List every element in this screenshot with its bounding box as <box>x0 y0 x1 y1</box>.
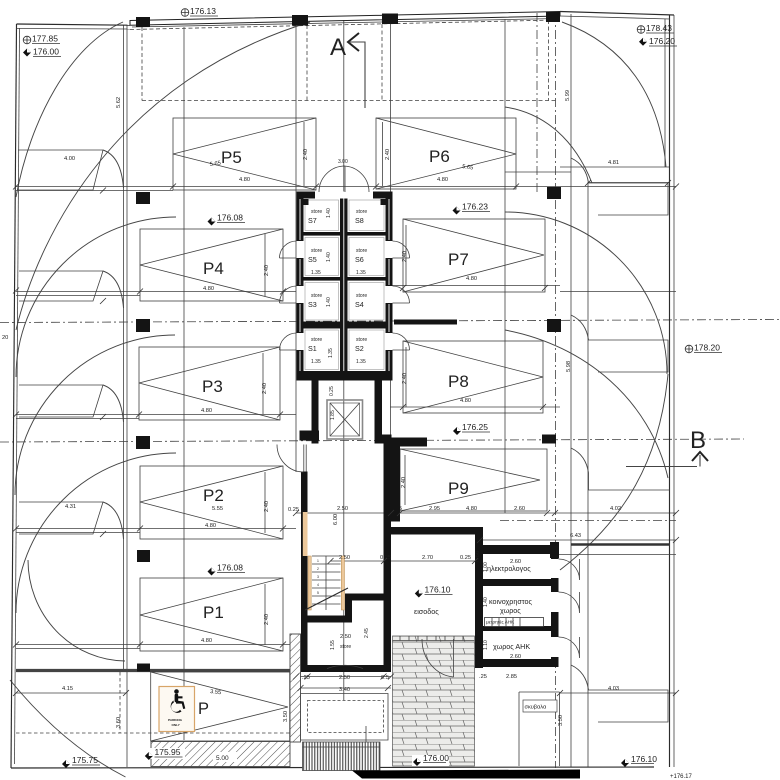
svg-text:176.23: 176.23 <box>462 202 488 212</box>
svg-text:4.80: 4.80 <box>201 408 212 414</box>
svg-text:4.80: 4.80 <box>460 398 471 404</box>
svg-text:χωρος: χωρος <box>500 606 521 615</box>
svg-text:6.43: 6.43 <box>570 533 581 539</box>
svg-text:3: 3 <box>317 575 319 579</box>
svg-text:178.43: 178.43 <box>646 23 672 33</box>
svg-text:P4: P4 <box>203 259 224 278</box>
svg-text:4.80: 4.80 <box>466 276 477 282</box>
svg-text:S3: S3 <box>308 300 317 309</box>
svg-text:κοινοχρηστος: κοινοχρηστος <box>489 597 533 606</box>
svg-text:0.25: 0.25 <box>380 555 391 561</box>
svg-text:4.00: 4.00 <box>64 156 75 162</box>
svg-text:μετρητές ΑΗΚ: μετρητές ΑΗΚ <box>486 619 515 625</box>
svg-text:P6: P6 <box>429 147 450 166</box>
svg-text:B: B <box>690 427 706 454</box>
svg-text:1.35: 1.35 <box>356 270 366 276</box>
svg-text:177.85: 177.85 <box>32 34 58 44</box>
svg-text:176.08: 176.08 <box>217 563 243 573</box>
svg-text:store: store <box>356 209 367 215</box>
svg-text:176.20: 176.20 <box>649 36 675 46</box>
svg-text:175.95: 175.95 <box>155 747 181 757</box>
svg-text:4.81: 4.81 <box>608 160 619 166</box>
svg-text:2.60: 2.60 <box>510 559 521 565</box>
svg-text:P3: P3 <box>202 377 223 396</box>
svg-text:1.55: 1.55 <box>330 640 336 650</box>
svg-text:5.55: 5.55 <box>212 506 223 512</box>
svg-text:5.99: 5.99 <box>565 90 571 101</box>
svg-text:χωρος ΑΗΚ: χωρος ΑΗΚ <box>493 642 530 651</box>
svg-text:2: 2 <box>317 567 319 571</box>
svg-text:1.40: 1.40 <box>483 597 489 607</box>
svg-text:2.40: 2.40 <box>402 251 408 262</box>
svg-text:1: 1 <box>317 559 319 563</box>
svg-text:176.10: 176.10 <box>425 585 451 595</box>
svg-text:2.70: 2.70 <box>422 555 433 561</box>
svg-text:P: P <box>198 700 209 718</box>
svg-text:A: A <box>330 34 346 61</box>
svg-text:ηλεκτρολογος: ηλεκτρολογος <box>487 564 531 573</box>
svg-text:3.50: 3.50 <box>558 715 564 726</box>
svg-text:5.00: 5.00 <box>216 755 229 762</box>
svg-text:5: 5 <box>317 591 319 595</box>
svg-text:S8: S8 <box>355 216 364 225</box>
svg-text:2.40: 2.40 <box>402 373 408 384</box>
svg-text:2.50: 2.50 <box>339 555 350 561</box>
svg-text:4.15: 4.15 <box>62 686 73 692</box>
svg-text:store: store <box>356 293 367 299</box>
svg-text:2.60: 2.60 <box>514 506 525 512</box>
svg-text:175.75: 175.75 <box>72 755 98 765</box>
svg-text:P9: P9 <box>448 479 469 498</box>
svg-text:20: 20 <box>2 335 8 341</box>
svg-text:S6: S6 <box>355 255 364 264</box>
svg-text:4.80: 4.80 <box>205 523 216 529</box>
svg-text:1.40: 1.40 <box>326 252 332 262</box>
svg-text:176.10: 176.10 <box>631 754 657 764</box>
svg-text:176.08: 176.08 <box>217 213 243 223</box>
svg-text:3.00: 3.00 <box>338 159 348 165</box>
svg-text:3.55: 3.55 <box>210 689 222 696</box>
svg-text:2.50: 2.50 <box>340 634 351 640</box>
svg-text:2.50: 2.50 <box>339 675 350 681</box>
svg-text:176.00: 176.00 <box>423 753 449 763</box>
svg-text:2.45: 2.45 <box>364 628 370 638</box>
svg-text:S2: S2 <box>355 344 364 353</box>
svg-text:1.35: 1.35 <box>311 270 321 276</box>
svg-text:5.98: 5.98 <box>566 361 572 372</box>
svg-text:1.35: 1.35 <box>311 359 321 365</box>
svg-text:2.40: 2.40 <box>303 149 309 160</box>
svg-text:PARKING: PARKING <box>168 718 183 722</box>
svg-text:1.40: 1.40 <box>326 297 332 307</box>
svg-text:3.50: 3.50 <box>283 711 289 722</box>
svg-text:6.00: 6.00 <box>333 514 339 525</box>
svg-text:εισοδος: εισοδος <box>414 607 439 616</box>
svg-text:176.13: 176.13 <box>190 6 216 16</box>
svg-text:2.40: 2.40 <box>264 614 270 625</box>
svg-text:store: store <box>356 248 367 254</box>
svg-text:2.40: 2.40 <box>264 501 270 512</box>
svg-text:store: store <box>311 293 322 299</box>
svg-text:+176.17: +176.17 <box>670 774 693 780</box>
svg-text:2.60: 2.60 <box>510 654 521 660</box>
svg-text:2.40: 2.40 <box>401 477 407 488</box>
svg-text:4.80: 4.80 <box>201 638 212 644</box>
svg-text:2.40: 2.40 <box>262 383 268 394</box>
svg-text:2.95: 2.95 <box>429 506 440 512</box>
svg-text:3.60: 3.60 <box>116 717 122 728</box>
svg-text:4.80: 4.80 <box>437 177 448 183</box>
svg-text:P8: P8 <box>448 372 469 391</box>
svg-text:4.80: 4.80 <box>466 506 477 512</box>
svg-text:1.40: 1.40 <box>326 208 332 218</box>
svg-text:store: store <box>340 644 351 650</box>
svg-text:2.85: 2.85 <box>506 674 517 680</box>
svg-text:2.50: 2.50 <box>337 506 348 512</box>
svg-text:4.02: 4.02 <box>610 506 621 512</box>
svg-text:store: store <box>311 337 322 343</box>
svg-text:5.62: 5.62 <box>116 97 122 108</box>
svg-text:2.40: 2.40 <box>385 149 391 160</box>
svg-text:S7: S7 <box>308 216 317 225</box>
svg-text:0.25: 0.25 <box>460 555 471 561</box>
svg-text:σκυβαλα: σκυβαλα <box>525 705 547 711</box>
svg-text:.25: .25 <box>479 674 487 680</box>
svg-text:4.80: 4.80 <box>239 177 250 183</box>
svg-text:store: store <box>311 248 322 254</box>
svg-text:1.35: 1.35 <box>356 359 366 365</box>
svg-text:176.00: 176.00 <box>33 47 59 57</box>
svg-text:1.10: 1.10 <box>483 640 489 650</box>
svg-text:1.85: 1.85 <box>330 410 336 420</box>
svg-text:1.00: 1.00 <box>483 562 489 572</box>
svg-text:178.20: 178.20 <box>694 343 720 353</box>
svg-text:S4: S4 <box>355 300 364 309</box>
svg-text:4.31: 4.31 <box>65 504 76 510</box>
svg-text:4: 4 <box>317 583 319 587</box>
svg-text:store: store <box>356 337 367 343</box>
svg-text:store: store <box>311 209 322 215</box>
svg-text:S1: S1 <box>308 344 317 353</box>
svg-text:1.35: 1.35 <box>328 348 334 358</box>
svg-text:2.40: 2.40 <box>264 265 270 276</box>
svg-text:ONLY: ONLY <box>172 723 181 727</box>
svg-text:4.03: 4.03 <box>608 686 619 692</box>
svg-text:P5: P5 <box>221 148 242 167</box>
svg-text:4.80: 4.80 <box>203 286 214 292</box>
svg-text:176.25: 176.25 <box>462 422 488 432</box>
svg-text:S5: S5 <box>308 255 317 264</box>
svg-text:P1: P1 <box>203 603 224 622</box>
svg-text:0.25: 0.25 <box>329 386 335 396</box>
svg-text:P2: P2 <box>203 486 224 505</box>
svg-text:P7: P7 <box>448 250 469 269</box>
